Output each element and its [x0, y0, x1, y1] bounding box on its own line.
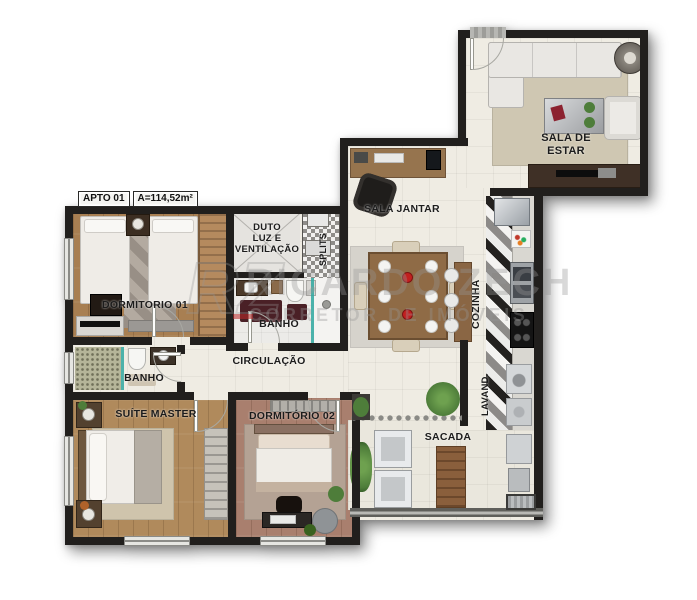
room-label-banho2: BANHO — [112, 372, 176, 384]
toilet-icon — [286, 280, 304, 302]
wall — [278, 343, 348, 351]
shelf — [271, 280, 283, 294]
wall — [490, 188, 648, 196]
room-label-dormitorio1: DORMITORIO 01 — [90, 299, 200, 311]
dinner-plate — [425, 260, 438, 273]
room-label-sala-estar: SALA DE ESTAR — [528, 132, 604, 158]
bar-stool — [444, 268, 459, 283]
wall — [226, 343, 248, 351]
armchair — [604, 96, 642, 140]
apartment-floorplan: SALA DE ESTAR SALA JANTAR COZINHA LAVAND… — [0, 0, 697, 600]
watermark-red-accent — [233, 314, 253, 319]
plant-pot-icon — [78, 401, 87, 410]
shower-floor — [314, 278, 340, 343]
dinner-plate — [425, 320, 438, 333]
bar-stool — [444, 318, 459, 333]
shower-drain-icon — [322, 300, 331, 309]
lounge-chair — [374, 430, 412, 468]
apto-area-tag: A=114,52m² — [133, 191, 198, 207]
table-lamp-icon — [623, 51, 637, 65]
fruit-plate — [511, 230, 531, 248]
wall — [340, 214, 348, 351]
entry-doormat — [470, 27, 506, 38]
room-label-sacada: SACADA — [408, 431, 488, 443]
wall — [340, 138, 468, 146]
bed-pillow — [84, 219, 126, 233]
wall — [458, 30, 470, 38]
kitchen-sink — [494, 198, 530, 226]
window — [260, 536, 326, 546]
wall — [65, 337, 152, 345]
dinner-plate — [425, 290, 438, 303]
sink-icon — [244, 282, 258, 293]
oven-door — [513, 267, 531, 281]
bed-pillow — [152, 219, 194, 233]
room-label-cozinha: COZINHA — [470, 258, 482, 350]
monitor-icon — [426, 150, 441, 170]
planter-plant-icon — [353, 397, 369, 417]
wall — [65, 392, 194, 400]
lounge-chair — [374, 470, 412, 508]
tree-plant-icon — [426, 382, 460, 416]
window — [124, 536, 190, 546]
room-label-sala-jantar: SALA JANTAR — [350, 203, 454, 215]
laundry-tank — [506, 398, 532, 426]
wall — [640, 30, 648, 196]
plant-pot-icon — [328, 486, 344, 502]
dinner-plate — [378, 320, 391, 333]
wall — [65, 206, 348, 214]
bed-blanket — [134, 430, 162, 504]
wall — [228, 392, 236, 545]
dining-chair — [354, 282, 367, 310]
room-label-splits: SPLITS — [318, 216, 329, 282]
centerpiece-bowl — [402, 309, 413, 320]
bed-pillow — [89, 433, 107, 501]
wall — [228, 392, 308, 400]
water-heater — [508, 468, 530, 492]
apartment-tags: APTO 01A=114,52m² — [78, 188, 198, 207]
room-label-dormitorio2: DORMITÓRIO 02 — [238, 410, 346, 422]
bed-throw — [256, 482, 332, 492]
centerpiece-bowl — [402, 272, 413, 283]
toilet-icon — [128, 348, 146, 370]
ac-condenser — [506, 494, 536, 510]
wall — [534, 188, 543, 520]
window — [64, 352, 74, 384]
wardrobe — [198, 214, 226, 336]
plant-pot-icon — [584, 117, 595, 128]
laundry-sink — [506, 434, 532, 464]
wardrobe — [204, 428, 228, 520]
plant-pot-icon — [304, 524, 316, 536]
room-label-banho1: BANHO — [244, 318, 314, 330]
flower-pot-icon — [80, 501, 89, 510]
wood-bench — [436, 446, 466, 508]
wall — [458, 30, 466, 146]
tv-cabinet-box — [598, 168, 616, 178]
tv-icon — [80, 321, 120, 327]
wall — [460, 340, 468, 426]
printer-icon — [354, 152, 368, 163]
cooktop — [510, 312, 534, 348]
nightstand-lamp-icon — [82, 408, 95, 421]
nightstand-lamp-icon — [132, 218, 144, 230]
room-label-duto: DUTO LUZ E VENTILAÇÃO — [230, 222, 304, 256]
bar-stool — [444, 293, 459, 308]
wall — [226, 272, 304, 278]
desk-papers — [374, 153, 404, 163]
sofa — [488, 42, 622, 78]
desk-papers — [270, 515, 296, 524]
room-label-circulacao: CIRCULAÇÃO — [214, 355, 324, 367]
floorplan-canvas: SALA DE ESTAR SALA JANTAR COZINHA LAVAND… — [0, 0, 697, 600]
window — [64, 436, 74, 506]
room-label-suite: SUÍTE MASTER — [96, 408, 216, 420]
microwave-door — [513, 285, 531, 298]
apto-number-tag: APTO 01 — [78, 191, 130, 207]
dinner-plate — [378, 260, 391, 273]
dinner-plate — [378, 290, 391, 303]
shower-glass — [311, 278, 314, 343]
room-label-lavanderia: LAVAND. — [480, 368, 491, 422]
dining-chair — [392, 339, 420, 352]
washing-machine — [506, 364, 532, 394]
wall — [340, 138, 348, 214]
window — [64, 238, 74, 300]
wall — [504, 30, 648, 38]
plant-pot-icon — [584, 102, 595, 113]
